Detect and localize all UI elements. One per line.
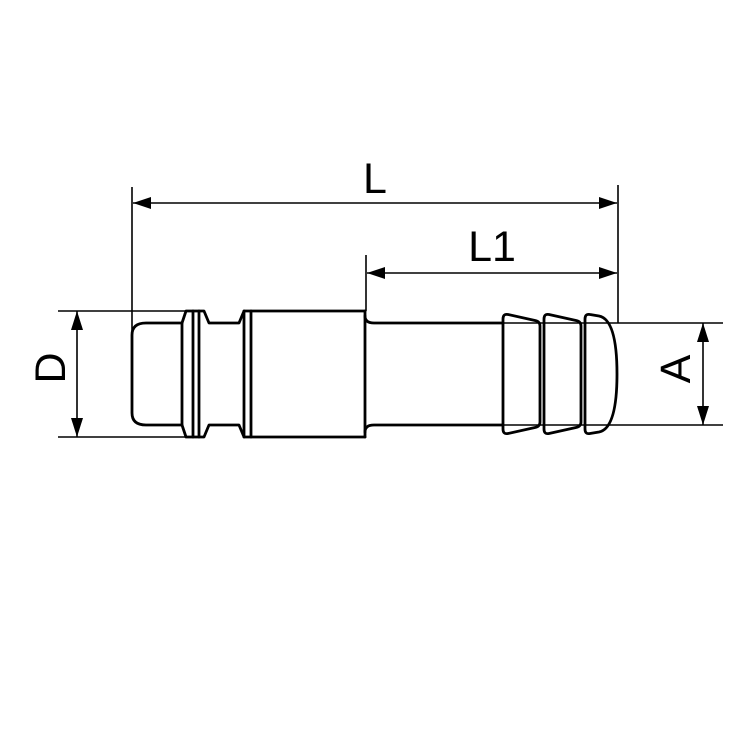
plug-collar-body-bottom: [182, 425, 365, 437]
dim-A-label: A: [652, 354, 700, 383]
hose-barb-3: [585, 314, 617, 433]
dim-L-label: L: [363, 155, 387, 203]
dim-D-arrow-top: [71, 311, 83, 330]
hose-barb-2: [544, 314, 581, 433]
dim-L-arrow-right: [599, 197, 617, 209]
plug-tip: [132, 323, 182, 425]
part-outline: [132, 311, 617, 437]
dim-A-arrow-top: [697, 323, 709, 342]
hose-stem-top: [365, 316, 503, 323]
dim-D-label: D: [27, 352, 75, 383]
technical-drawing-canvas: L L1 D A: [0, 0, 750, 750]
hose-barb-1: [503, 314, 540, 433]
plug-collar-body-top: [182, 311, 365, 323]
dim-L1-arrow-left: [367, 267, 385, 279]
dim-D-arrow-bottom: [71, 418, 83, 437]
dim-L1-label: L1: [468, 223, 516, 271]
dimension-lines: [58, 185, 723, 437]
dim-L-arrow-left: [133, 197, 151, 209]
dim-L1-arrow-right: [599, 267, 617, 279]
hose-stem-bottom: [365, 425, 503, 432]
dim-A-arrow-bottom: [697, 406, 709, 425]
coupling-plug-drawing: L L1 D A: [0, 0, 750, 750]
dimension-arrowheads: [71, 197, 709, 437]
